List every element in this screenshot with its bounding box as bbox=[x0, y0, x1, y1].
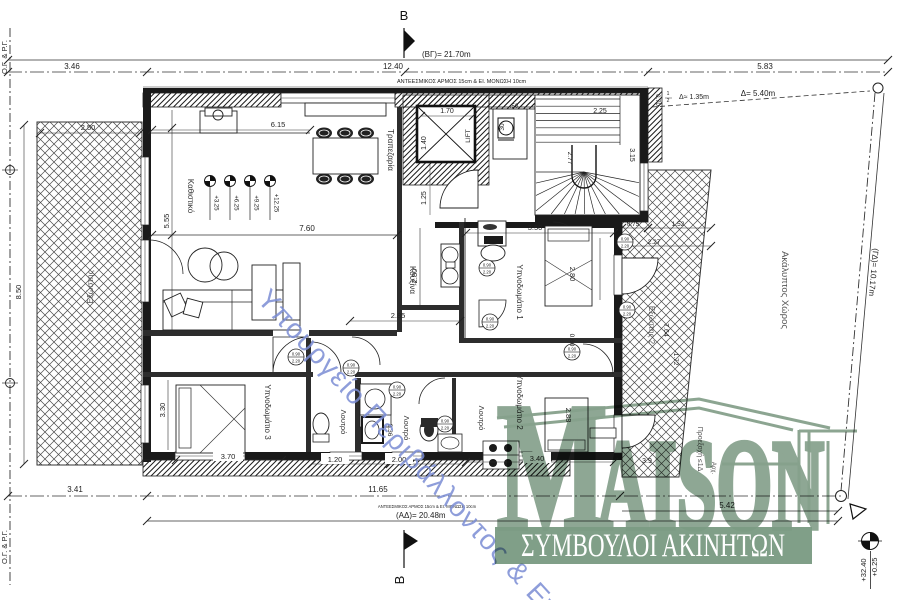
svg-text:Καθιστικό: Καθιστικό bbox=[186, 179, 195, 214]
svg-text:.50: .50 bbox=[510, 104, 519, 110]
svg-text:ΑΝΤΕΕΣΜΙΚΟΣ ΑΡΜΟΣ 15cm & ΕΙ. Μ: ΑΝΤΕΕΣΜΙΚΟΣ ΑΡΜΟΣ 15cm & ΕΙ. ΜΟΝΩΣΗ 10cm bbox=[397, 79, 527, 85]
svg-text:3.15: 3.15 bbox=[628, 148, 635, 162]
svg-text:2.20: 2.20 bbox=[292, 359, 301, 364]
svg-text:Υπνοδωμάτιο 1: Υπνοδωμάτιο 1 bbox=[515, 264, 524, 320]
svg-text:Δ≈ 1.35m: Δ≈ 1.35m bbox=[679, 94, 709, 101]
svg-text:2.20: 2.20 bbox=[486, 324, 495, 329]
svg-text:1.52: 1.52 bbox=[672, 221, 685, 228]
svg-text:Ο.Γ. & Ρ.Γ.: Ο.Γ. & Ρ.Γ. bbox=[0, 40, 9, 74]
svg-text:6.15: 6.15 bbox=[271, 120, 286, 129]
svg-text:1.25: 1.25 bbox=[421, 191, 428, 205]
svg-text:0.90: 0.90 bbox=[483, 263, 492, 268]
svg-text:0.60: 0.60 bbox=[568, 334, 575, 347]
svg-text:0.75: 0.75 bbox=[627, 221, 640, 228]
svg-text:2.77: 2.77 bbox=[566, 152, 573, 165]
svg-text:1: 1 bbox=[667, 91, 670, 97]
svg-text:2.80: 2.80 bbox=[568, 267, 577, 282]
svg-text:Ο.Γ. & Ρ.Γ.: Ο.Γ. & Ρ.Γ. bbox=[0, 530, 9, 564]
svg-text:30: 30 bbox=[499, 123, 506, 131]
svg-text:3.46: 3.46 bbox=[64, 62, 80, 71]
svg-text:Τραπεζαρία: Τραπεζαρία bbox=[386, 129, 395, 171]
svg-text:Εξώστης: Εξώστης bbox=[85, 270, 95, 304]
svg-text:2.20: 2.20 bbox=[483, 270, 492, 275]
svg-text:Κουζίνα: Κουζίνα bbox=[408, 266, 417, 294]
svg-text:2.20: 2.20 bbox=[393, 392, 402, 397]
svg-text:B: B bbox=[392, 576, 407, 585]
svg-text:2.20: 2.20 bbox=[568, 354, 577, 359]
svg-text:+12.25: +12.25 bbox=[273, 194, 279, 213]
svg-text:0.90: 0.90 bbox=[568, 347, 577, 352]
svg-text:7.64: 7.64 bbox=[662, 323, 669, 337]
svg-text:1.40: 1.40 bbox=[421, 136, 428, 150]
svg-text:0.90: 0.90 bbox=[621, 237, 630, 242]
svg-text:8.50: 8.50 bbox=[14, 285, 23, 300]
svg-text:1.20: 1.20 bbox=[328, 455, 343, 464]
svg-text:ΣΥΜΒΟΥΛΟΙ ΑΚΙΝΗΤΩΝ: ΣΥΜΒΟΥΛΟΙ ΑΚΙΝΗΤΩΝ bbox=[521, 528, 785, 564]
svg-text:-1.72: -1.72 bbox=[672, 351, 679, 366]
svg-text:+32.40: +32.40 bbox=[859, 558, 868, 581]
svg-text:0.90: 0.90 bbox=[486, 317, 495, 322]
svg-text:+9.25: +9.25 bbox=[253, 195, 259, 211]
svg-text:3.41: 3.41 bbox=[67, 485, 83, 494]
svg-text:B: B bbox=[400, 8, 409, 23]
svg-text:+3.25: +3.25 bbox=[213, 195, 219, 211]
svg-text:0.90: 0.90 bbox=[623, 305, 632, 310]
svg-text:+6.25: +6.25 bbox=[233, 195, 239, 211]
svg-text:2.85: 2.85 bbox=[391, 311, 406, 320]
svg-text:Εξώστης 2: Εξώστης 2 bbox=[647, 306, 656, 345]
svg-text:5.83: 5.83 bbox=[757, 62, 773, 71]
svg-text:Υπνοδωμάτιο 3: Υπνοδωμάτιο 3 bbox=[263, 384, 272, 440]
svg-text:+0.25: +0.25 bbox=[870, 558, 879, 577]
svg-text:3.70: 3.70 bbox=[221, 452, 236, 461]
svg-text:2.50: 2.50 bbox=[81, 123, 96, 132]
svg-text:(ΒΓ)= 21.70m: (ΒΓ)= 21.70m bbox=[422, 50, 471, 59]
svg-text:2.27: 2.27 bbox=[648, 239, 661, 246]
svg-text:11.65: 11.65 bbox=[368, 485, 388, 494]
svg-text:0.70: 0.70 bbox=[654, 94, 660, 106]
svg-text:12.40: 12.40 bbox=[383, 62, 404, 71]
svg-text:2.20: 2.20 bbox=[623, 312, 632, 317]
svg-text:3.50: 3.50 bbox=[528, 223, 543, 232]
svg-text:Ακάλυπτος Χώρος: Ακάλυπτος Χώρος bbox=[779, 251, 790, 329]
svg-text:3.30: 3.30 bbox=[158, 403, 167, 418]
svg-text:7.60: 7.60 bbox=[299, 224, 315, 233]
svg-text:2: 2 bbox=[667, 98, 670, 104]
svg-text:(ΑΔ)= 20.48m: (ΑΔ)= 20.48m bbox=[396, 511, 446, 520]
svg-text:2.25: 2.25 bbox=[593, 108, 607, 115]
svg-text:Λουτρό: Λουτρό bbox=[339, 410, 348, 435]
svg-text:Δ= 5.40m: Δ= 5.40m bbox=[741, 89, 776, 98]
svg-text:2.20: 2.20 bbox=[621, 244, 630, 249]
svg-text:1.70: 1.70 bbox=[440, 108, 454, 115]
svg-text:LIFT: LIFT bbox=[465, 129, 472, 142]
svg-text:2.20: 2.20 bbox=[441, 426, 450, 431]
svg-text:5.55: 5.55 bbox=[162, 214, 171, 229]
svg-text:0.90: 0.90 bbox=[441, 419, 450, 424]
svg-text:0.90: 0.90 bbox=[393, 385, 402, 390]
svg-text:Λουτρό: Λουτρό bbox=[477, 406, 486, 431]
